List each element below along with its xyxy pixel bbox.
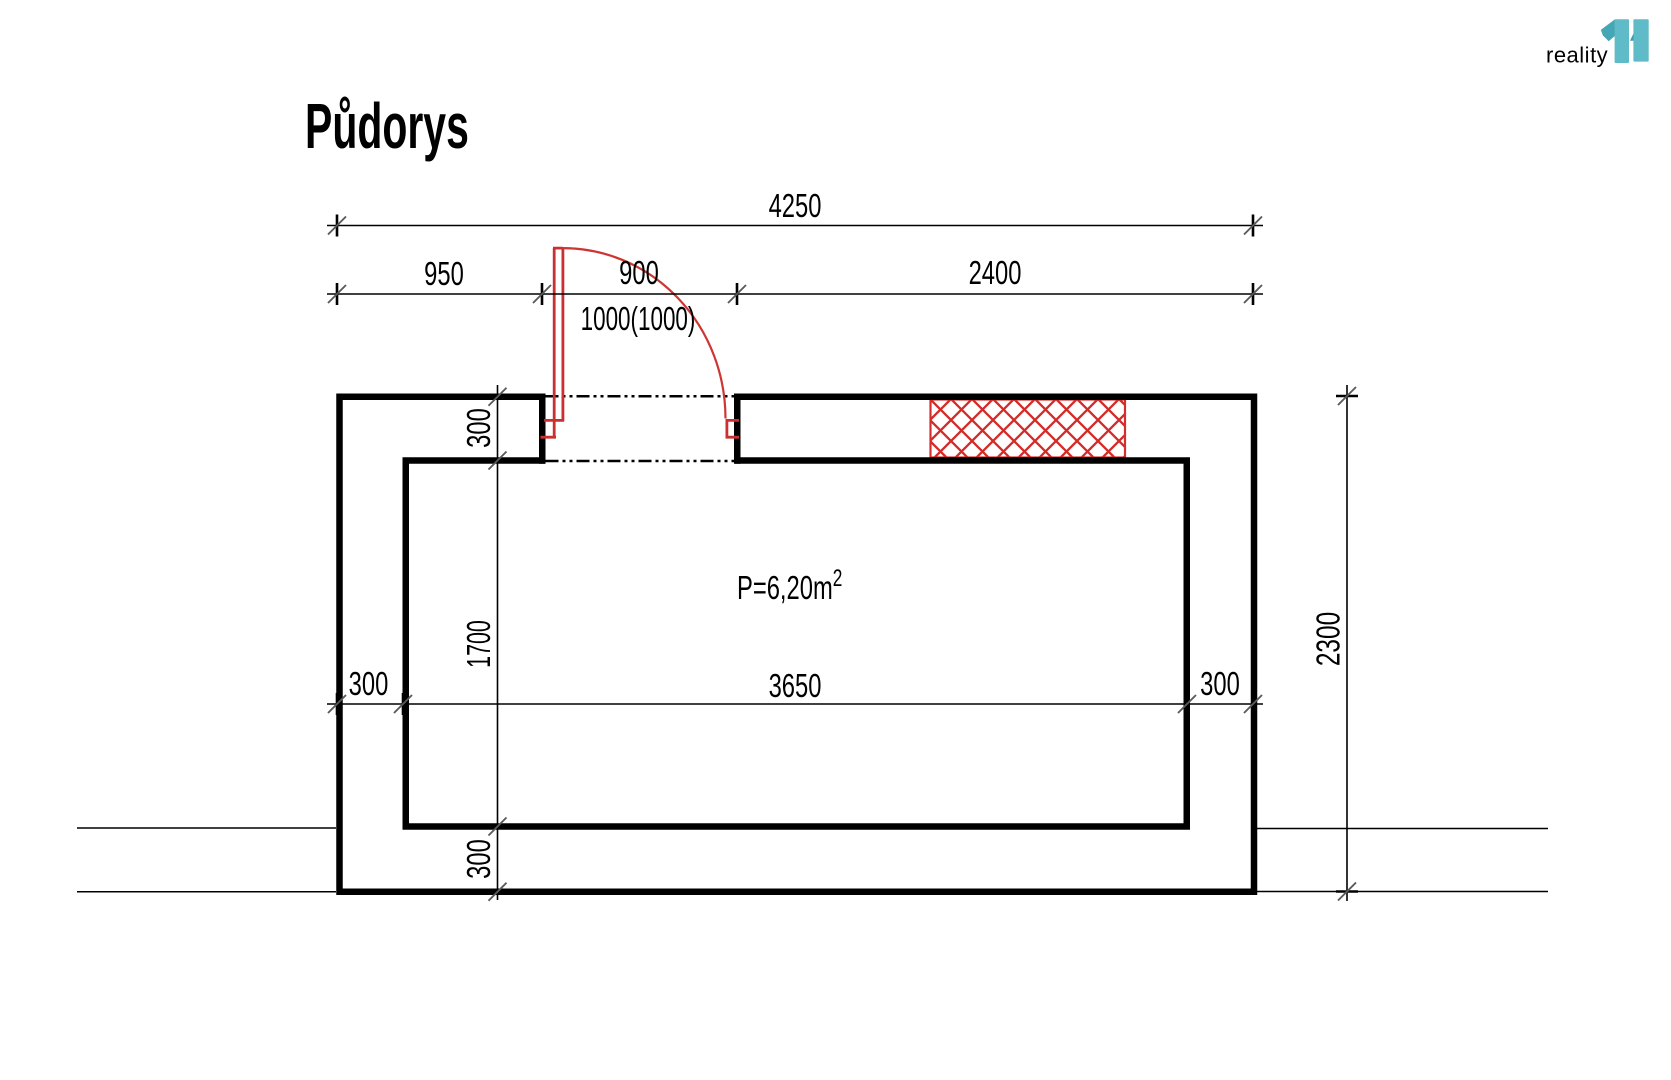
svg-text:900: 900	[619, 255, 659, 292]
svg-text:1700: 1700	[460, 620, 497, 668]
svg-text:300: 300	[1200, 666, 1240, 703]
svg-text:950: 950	[424, 256, 464, 293]
svg-text:2300: 2300	[1311, 612, 1347, 666]
svg-text:3650: 3650	[769, 668, 822, 705]
svg-text:Půdorys: Půdorys	[305, 91, 469, 162]
svg-text:300: 300	[461, 839, 498, 879]
svg-text:4250: 4250	[769, 188, 822, 225]
svg-text:2400: 2400	[969, 255, 1022, 292]
svg-text:300: 300	[461, 408, 498, 448]
svg-text:1000(1000): 1000(1000)	[581, 300, 696, 337]
svg-text:reality: reality	[1546, 43, 1608, 68]
svg-text:P=6,20m2: P=6,20m2	[737, 565, 842, 607]
svg-text:300: 300	[349, 666, 389, 703]
